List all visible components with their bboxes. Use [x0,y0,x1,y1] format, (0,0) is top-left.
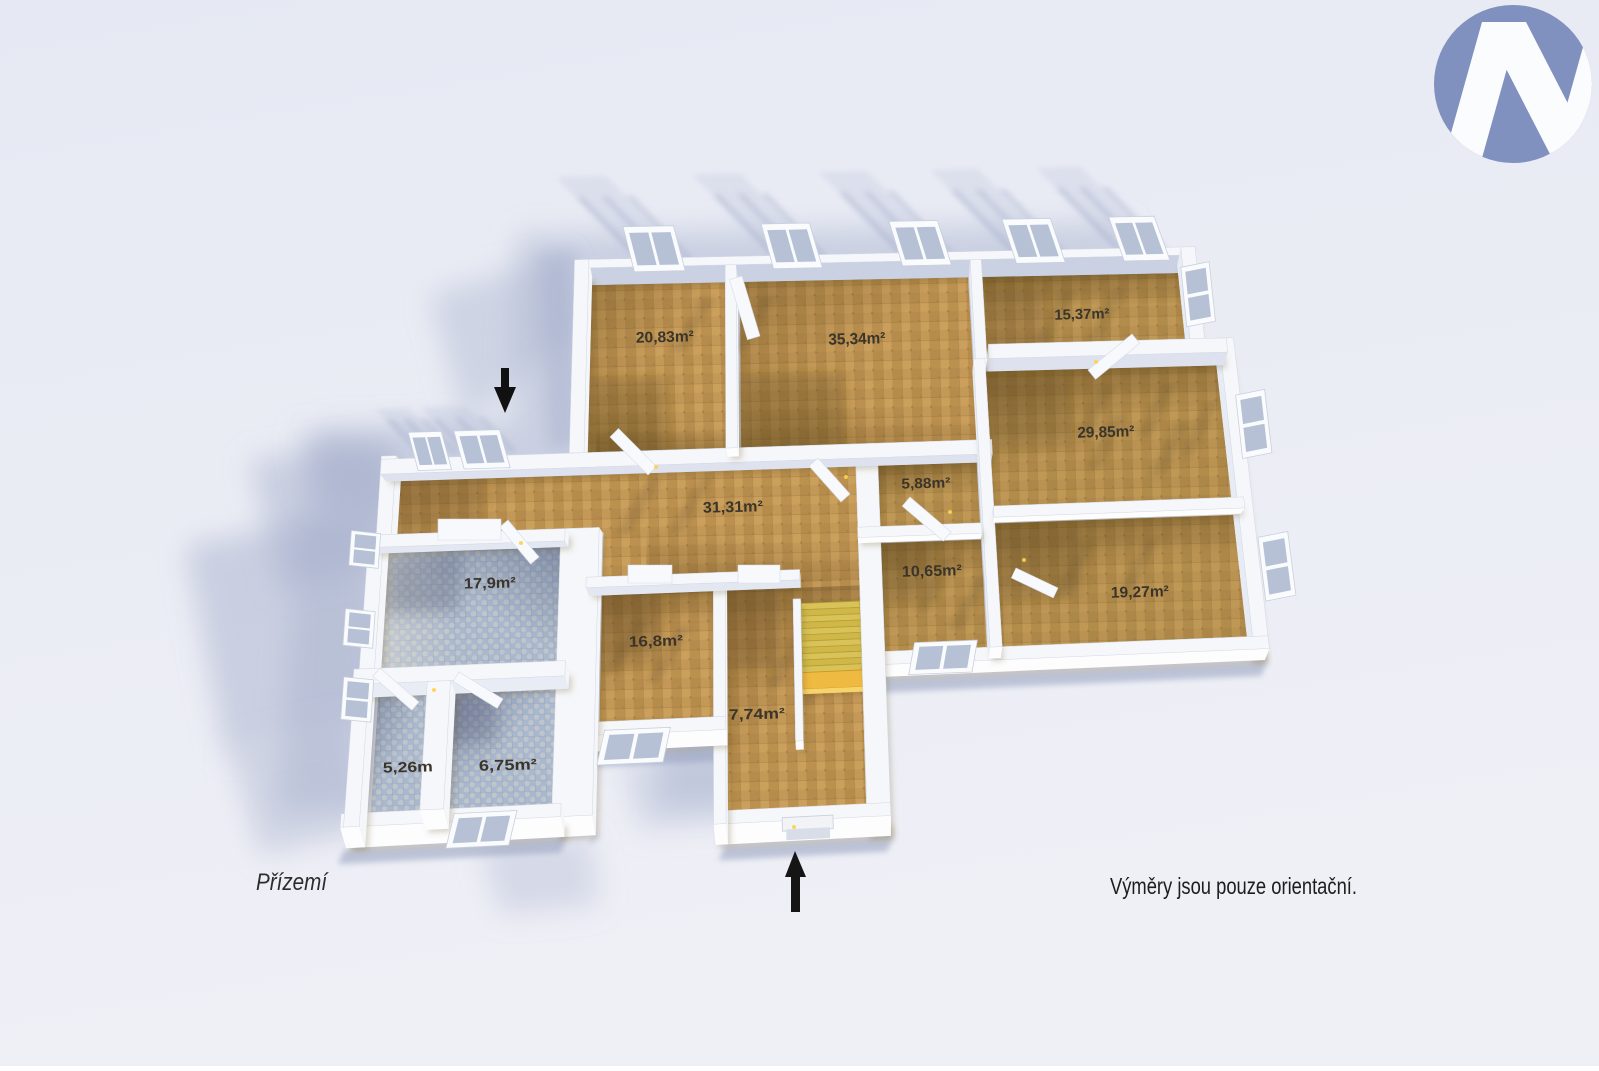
svg-text:20,83m²: 20,83m² [636,328,694,347]
svg-text:29,85m²: 29,85m² [1077,423,1134,441]
svg-text:5,26m: 5,26m [383,759,433,776]
svg-text:5,88m²: 5,88m² [901,475,951,492]
svg-text:10,65m²: 10,65m² [902,562,962,581]
svg-text:6,75m²: 6,75m² [479,756,537,775]
svg-text:7,74m²: 7,74m² [729,705,785,723]
svg-text:Výměry jsou pouze orientační.: Výměry jsou pouze orientační. [1110,873,1357,899]
svg-text:Přízemí: Přízemí [256,869,329,896]
svg-text:19,27m²: 19,27m² [1111,583,1169,602]
svg-text:35,34m²: 35,34m² [828,330,885,348]
svg-text:31,31m²: 31,31m² [703,498,763,517]
svg-text:16,8m²: 16,8m² [629,632,683,650]
svg-text:17,9m²: 17,9m² [464,574,516,592]
svg-text:15,37m²: 15,37m² [1054,306,1110,323]
